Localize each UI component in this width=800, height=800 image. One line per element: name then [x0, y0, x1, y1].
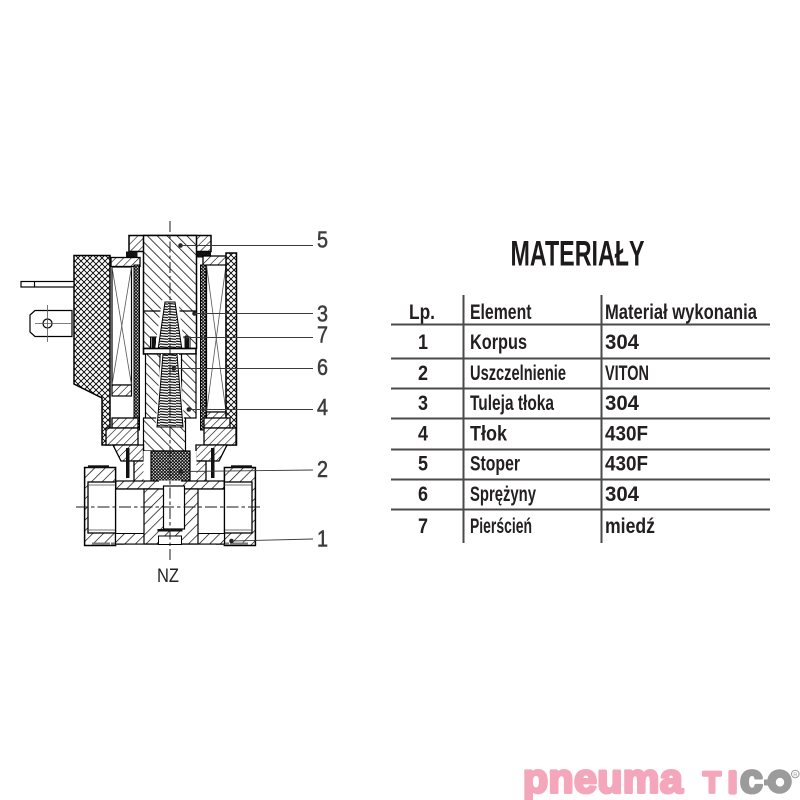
svg-text:1: 1 — [418, 331, 428, 354]
svg-text:Tuleja tłoka: Tuleja tłoka — [470, 392, 554, 415]
svg-text:5: 5 — [418, 453, 428, 476]
svg-text:430F: 430F — [605, 422, 648, 445]
svg-text:VITON: VITON — [605, 362, 649, 385]
svg-text:2: 2 — [418, 362, 428, 385]
svg-text:MATERIAŁY: MATERIAŁY — [511, 235, 645, 274]
svg-text:4: 4 — [418, 422, 428, 445]
svg-text:R: R — [793, 772, 797, 778]
svg-text:pneuma: pneuma — [523, 756, 684, 800]
svg-text:Lp.: Lp. — [409, 301, 435, 324]
svg-text:c: c — [740, 756, 763, 800]
svg-text:7: 7 — [317, 322, 328, 348]
svg-text:T: T — [703, 767, 721, 800]
svg-text:430F: 430F — [605, 453, 648, 476]
svg-text:NZ: NZ — [157, 565, 179, 587]
svg-text:Element: Element — [470, 301, 532, 324]
svg-text:1: 1 — [317, 526, 328, 552]
svg-text:2: 2 — [317, 456, 328, 482]
svg-text:304: 304 — [605, 392, 639, 415]
svg-text:6: 6 — [317, 354, 328, 380]
svg-text:Materiał wykonania: Materiał wykonania — [605, 301, 757, 324]
svg-text:Uszczelnienie: Uszczelnienie — [470, 362, 566, 385]
svg-text:Tłok: Tłok — [470, 422, 507, 445]
svg-text:Pierścień: Pierścień — [470, 515, 532, 538]
svg-text:5: 5 — [317, 227, 328, 253]
svg-text:4: 4 — [317, 394, 328, 420]
svg-text:3: 3 — [418, 392, 428, 415]
svg-text:Korpus: Korpus — [470, 331, 527, 354]
svg-text:miedź: miedź — [605, 515, 655, 538]
svg-text:Stoper: Stoper — [470, 453, 520, 476]
svg-text:7: 7 — [418, 515, 428, 538]
svg-text:Sprężyny: Sprężyny — [470, 483, 536, 506]
svg-text:6: 6 — [418, 483, 428, 506]
svg-text:304: 304 — [605, 483, 639, 506]
svg-text:304: 304 — [605, 331, 639, 354]
svg-text:I: I — [729, 767, 737, 800]
